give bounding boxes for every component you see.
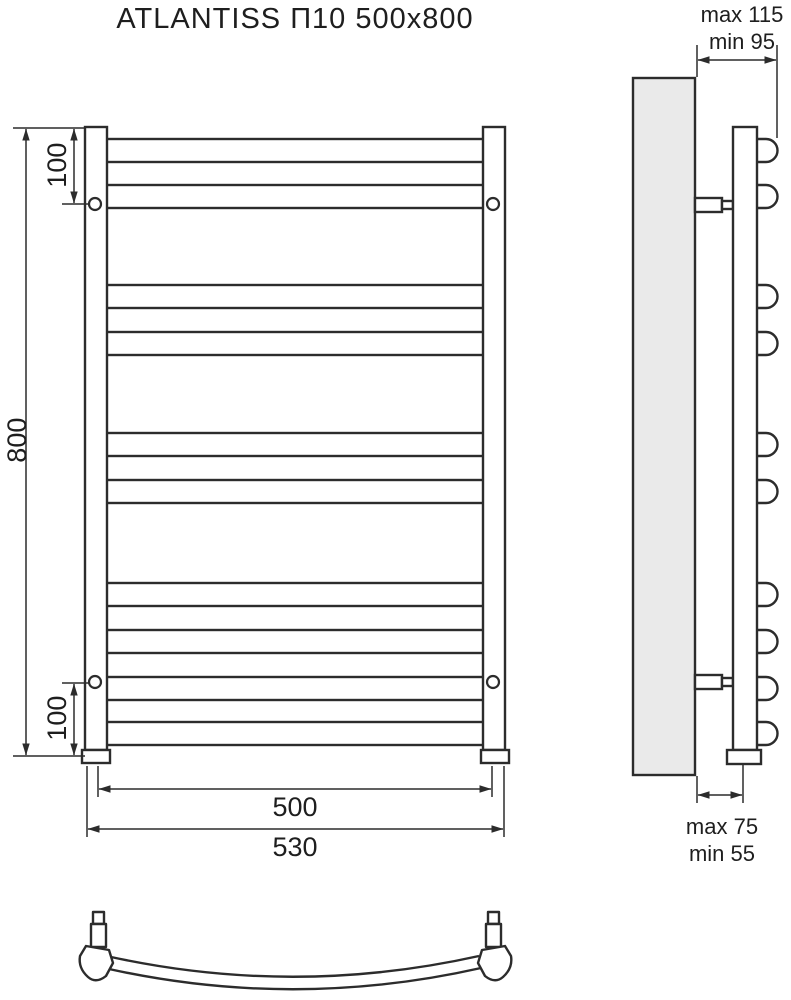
rung [106,433,484,456]
clearance-top-max: max 115 [687,1,791,28]
bracket-top-inner [722,201,733,209]
dim-label-800: 800 [3,405,31,475]
side-foot [727,750,761,764]
right-post [483,127,505,750]
rung-end [755,185,778,208]
rung-end [755,583,778,606]
mount-hole-top-left [89,198,101,210]
right-end-cap [478,946,511,980]
rung-end [755,630,778,653]
bracket-top-outer [695,198,722,212]
rung [106,677,484,700]
clearance-bottom-labels: max 75 min 55 [667,813,777,867]
rung-end [755,480,778,503]
left-foot [82,750,110,763]
towel-rail-technical-drawing: ATLANTISS П10 500x800 800 100 100 500 53… [0,0,791,1000]
clearance-bottom-max: max 75 [667,813,777,840]
rung [106,583,484,606]
dim-label-530: 530 [235,833,355,861]
rung [106,480,484,503]
rung-end [755,722,778,745]
clearance-top-labels: max 115 min 95 [687,1,791,55]
curved-rung-back-edge [109,968,481,989]
side-post [733,127,757,750]
mount-hole-bottom-left [89,676,101,688]
bracket-bottom-inner [722,678,733,686]
dim-label-100-bottom: 100 [43,683,71,753]
right-valve-tip [488,912,499,924]
left-valve-tip [93,912,104,924]
right-foot [481,750,509,763]
rung-end [755,139,778,162]
left-valve-stub [91,924,106,947]
mount-hole-bottom-right [487,676,499,688]
rung [106,332,484,355]
rung [106,185,484,208]
rung-ends [755,139,778,745]
rung-end [755,433,778,456]
bracket-bottom-outer [695,675,722,689]
rung [106,285,484,308]
front-view [82,127,509,763]
dim-label-500: 500 [235,793,355,821]
rung [106,722,484,745]
rung [106,630,484,653]
clearance-bottom-min: min 55 [667,840,777,867]
bottom-view [80,912,512,989]
wall [633,78,695,775]
rungs [106,139,484,745]
clearance-top-min: min 95 [687,28,791,55]
rung-end [755,677,778,700]
rung-end [755,332,778,355]
rung [106,139,484,162]
left-post [85,127,107,750]
left-end-cap [80,946,113,980]
dim-label-100-top: 100 [43,130,71,200]
curved-rung-front-edge [111,956,479,977]
right-valve-stub [486,924,501,947]
mount-hole-top-right [487,198,499,210]
drawing-title: ATLANTISS П10 500x800 [60,4,530,34]
side-view [633,78,778,775]
rung-end [755,285,778,308]
